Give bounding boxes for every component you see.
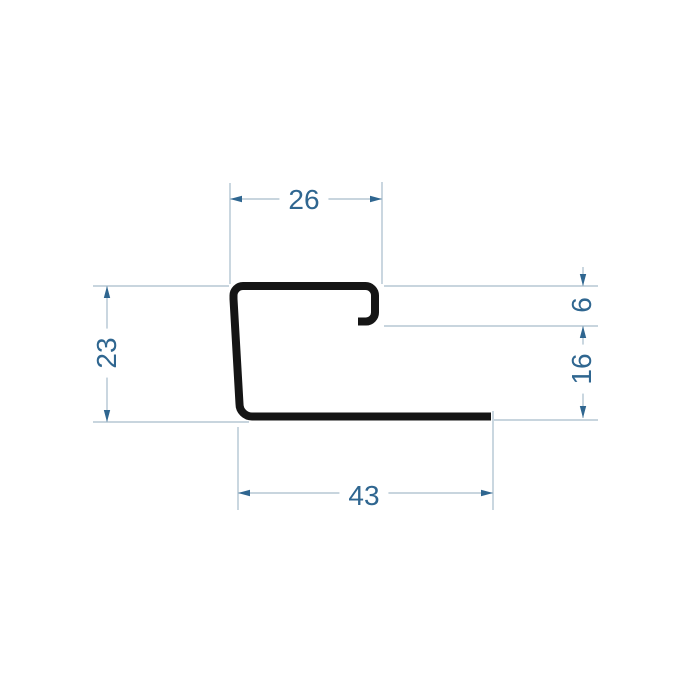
dimension-arrows — [104, 196, 586, 496]
dim-label-lip-offset: 6 — [567, 288, 597, 322]
arrow-right-lower-up — [580, 326, 586, 338]
dimension-lines — [107, 199, 583, 493]
arrow-lip-down — [580, 274, 586, 286]
arrow-right-lower-down — [580, 406, 586, 418]
arrow-top-width-left — [230, 196, 242, 202]
profile-outline — [234, 286, 492, 417]
dim-label-left-height: 23 — [92, 328, 122, 377]
arrow-left-height-up — [104, 286, 110, 298]
arrow-left-height-down — [104, 410, 110, 422]
arrow-bottom-width-left — [238, 490, 250, 496]
arrow-bottom-width-right — [481, 490, 493, 496]
extension-lines — [93, 182, 598, 510]
dim-label-bottom-width: 43 — [339, 481, 388, 511]
arrow-top-width-right — [370, 196, 382, 202]
dim-label-top-width: 26 — [279, 185, 328, 215]
dim-label-right-lower-height: 16 — [567, 344, 597, 393]
technical-drawing-canvas: 26 23 6 16 43 — [0, 0, 700, 700]
